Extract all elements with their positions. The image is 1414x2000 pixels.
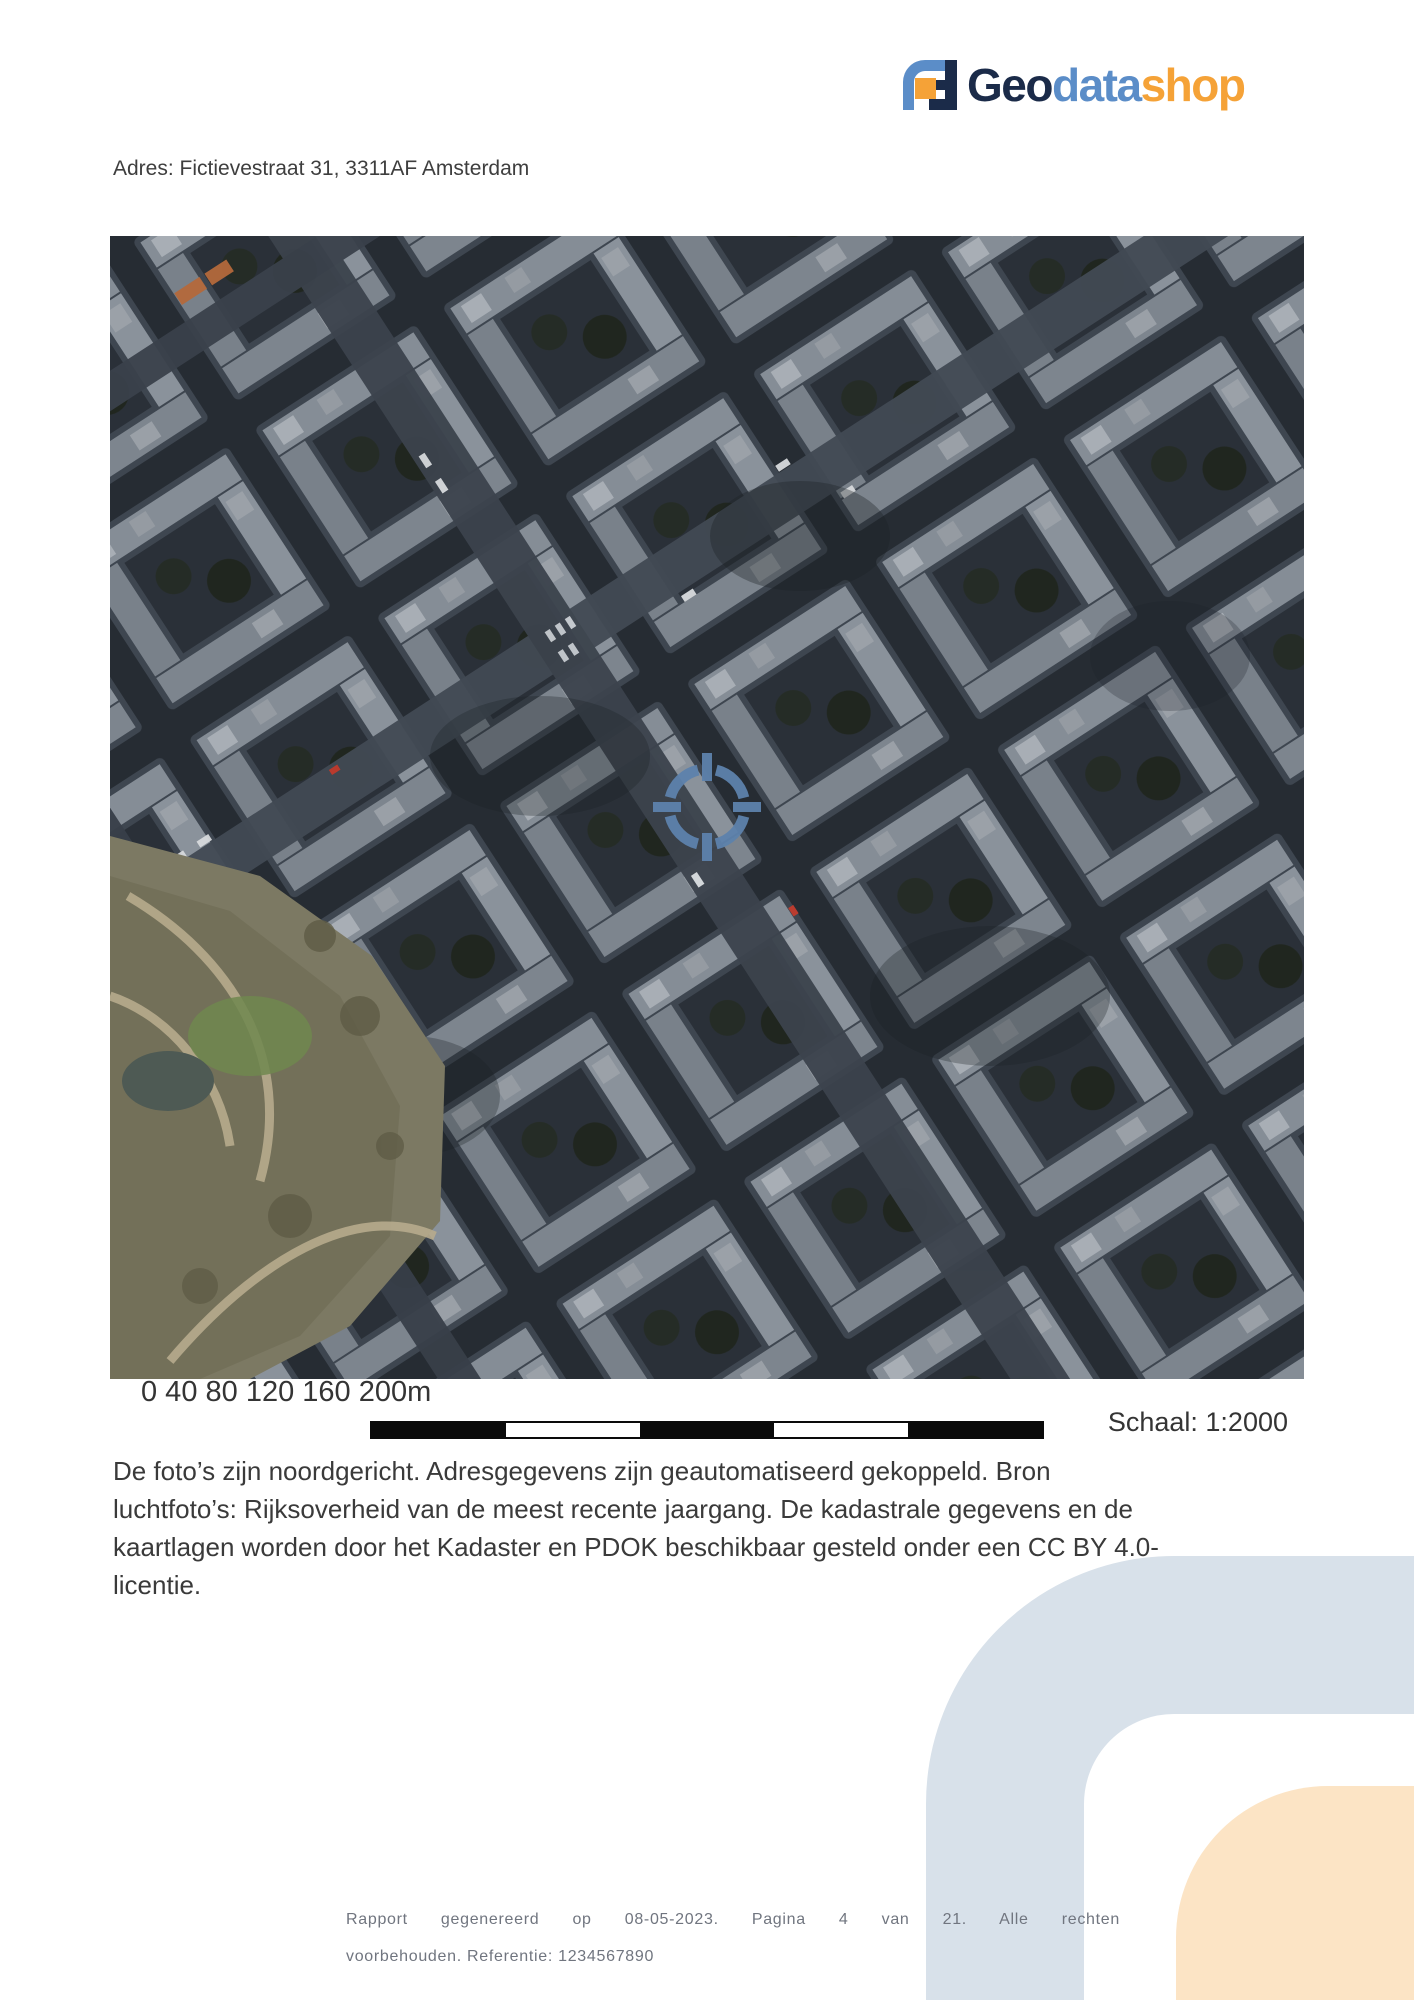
geodatashop-logo: Geodatashop [903,60,1244,110]
scale-bar-segment [908,1423,1042,1437]
scale-ratio-label: Schaal: 1:2000 [1108,1407,1288,1438]
disclaimer-line: De foto’s zijn noordgericht. Adresgegeve… [113,1452,1193,1490]
footer-line-2: voorbehouden. Referentie: 1234567890 [346,1938,1120,1975]
logo-text-shop: shop [1141,59,1245,111]
aerial-photo-map [110,236,1304,1379]
logo-wordmark: Geodatashop [967,62,1244,108]
scale-bar [370,1421,1044,1439]
logo-text-geo: Geo [967,59,1052,111]
disclaimer-line: licentie. [113,1566,1193,1604]
footer-line-1: Rapport gegenereerd op 08-05-2023. Pagin… [346,1901,1120,1938]
report-footer: Rapport gegenereerd op 08-05-2023. Pagin… [346,1901,1120,1975]
scale-bar-segment [640,1423,774,1437]
scale-bar-segment [774,1423,908,1437]
disclaimer-line: luchtfoto’s: Rijksoverheid van de meest … [113,1490,1193,1528]
scale-bar-segment [506,1423,640,1437]
geodatashop-logo-icon [903,60,957,110]
scale-ticks-label: 0 40 80 120 160 200m [141,1376,431,1409]
report-page: Geodatashop Adres: Fictievestraat 31, 33… [0,0,1414,2000]
logo-text-data: data [1052,59,1141,111]
disclaimer-line: kaartlagen worden door het Kadaster en P… [113,1528,1193,1566]
scale-bar-segment [372,1423,506,1437]
disclaimer-paragraph: De foto’s zijn noordgericht. Adresgegeve… [113,1452,1193,1604]
location-target-icon [649,749,765,865]
address-line: Adres: Fictievestraat 31, 3311AF Amsterd… [113,157,529,181]
